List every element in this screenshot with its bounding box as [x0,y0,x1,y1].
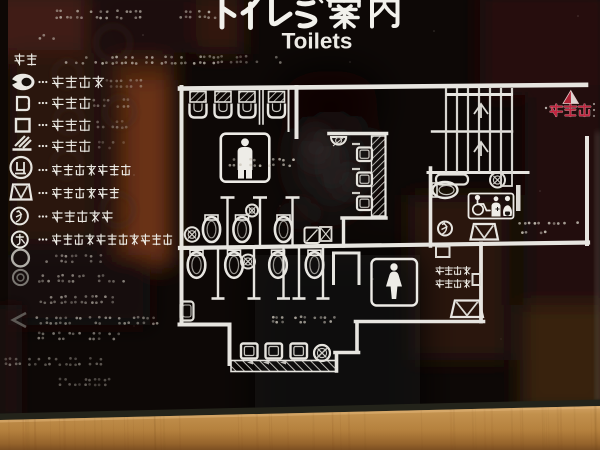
svg-text:Toilets: Toilets [282,29,353,54]
